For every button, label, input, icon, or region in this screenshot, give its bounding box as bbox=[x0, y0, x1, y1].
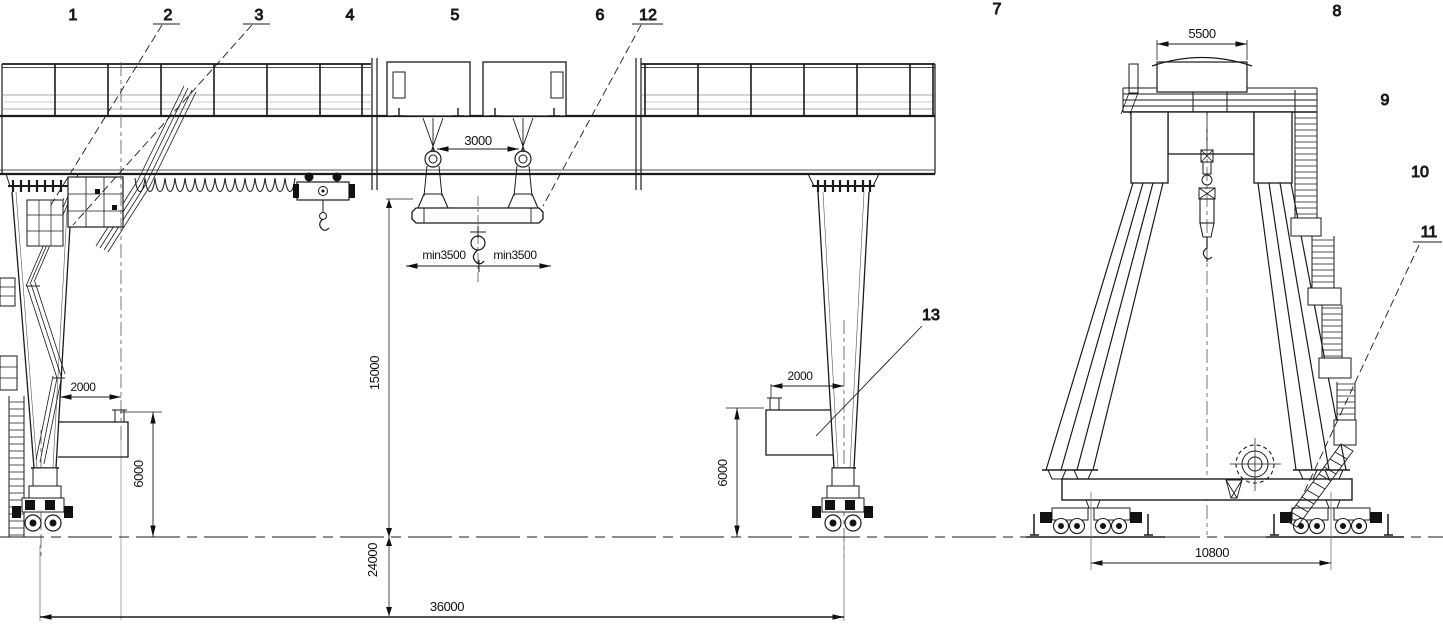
callout-7: 7 bbox=[993, 1, 1002, 18]
callout-1: 1 bbox=[69, 7, 78, 24]
spreader-beam bbox=[412, 208, 543, 223]
dim-outreach-right: 2000 bbox=[787, 369, 813, 383]
right-leg bbox=[766, 174, 879, 558]
dim-leg-clearance-left: 6000 bbox=[131, 460, 146, 487]
left-wheel-bogie bbox=[12, 468, 73, 531]
front-dimensions: 3000 min3500 min3500 15000 24000 36000 2… bbox=[40, 133, 844, 621]
rope-pulley-system bbox=[418, 118, 538, 208]
trolley-end-view bbox=[1121, 58, 1252, 115]
right-platform-bracket bbox=[766, 398, 833, 455]
side-panel bbox=[1129, 64, 1138, 93]
dim-outreach-left: 2000 bbox=[70, 380, 96, 394]
gantry-crane-general-arrangement-drawing: 3000 min3500 min3500 15000 24000 36000 2… bbox=[0, 0, 1443, 625]
dim-span: 36000 bbox=[430, 599, 464, 614]
festoon-cable bbox=[135, 178, 295, 192]
trolley-hoist-right bbox=[483, 62, 566, 116]
left-platform-bracket bbox=[58, 410, 128, 457]
callout-4: 4 bbox=[346, 7, 355, 24]
callout-10: 10 bbox=[1411, 164, 1429, 181]
service-hoist-hook bbox=[320, 219, 329, 230]
rest-platforms bbox=[0, 278, 17, 390]
dim-hook-min-left: min3500 bbox=[422, 248, 466, 262]
left-leg bbox=[0, 62, 196, 620]
leg-stairway bbox=[26, 86, 196, 464]
callout-6: 6 bbox=[596, 7, 605, 24]
leader-3 bbox=[73, 25, 252, 225]
side-hook-assembly bbox=[1199, 112, 1215, 535]
dim-clearance-height: 24000 bbox=[365, 543, 380, 577]
trolley-hoists bbox=[387, 62, 566, 116]
dim-trolley-top-width: 5500 bbox=[1188, 26, 1215, 41]
lower-beam bbox=[1062, 479, 1352, 508]
callout-13: 13 bbox=[922, 307, 940, 324]
right-wheel-bogie bbox=[812, 468, 873, 531]
service-hoist bbox=[293, 173, 355, 231]
leg-platform-box bbox=[27, 200, 63, 246]
callout-8: 8 bbox=[1333, 3, 1342, 20]
callout-2: 2 bbox=[164, 7, 173, 24]
dim-hook-min-right: min3500 bbox=[493, 248, 537, 262]
dim-hook-gauge: 3000 bbox=[464, 133, 491, 148]
drawing-canvas: 3000 min3500 min3500 15000 24000 36000 2… bbox=[0, 0, 1443, 625]
callout-12: 12 bbox=[639, 7, 657, 24]
callout-9: 9 bbox=[1381, 92, 1390, 109]
leader-13 bbox=[816, 326, 922, 436]
trolley-hoist-left bbox=[387, 62, 470, 116]
dim-lifting-height: 15000 bbox=[367, 356, 382, 390]
callout-5: 5 bbox=[451, 7, 460, 24]
callout-3: 3 bbox=[255, 7, 264, 24]
dim-bogie-wheelbase: 10800 bbox=[1195, 545, 1229, 560]
dim-leg-clearance-right: 6000 bbox=[715, 459, 730, 486]
side-wheel-bogies bbox=[1030, 508, 1393, 535]
side-elevation-view: 5500 10800 7 8 9 10 11 bbox=[993, 1, 1442, 570]
callout-11: 11 bbox=[1421, 224, 1438, 241]
electrical-cabinet bbox=[68, 177, 123, 227]
